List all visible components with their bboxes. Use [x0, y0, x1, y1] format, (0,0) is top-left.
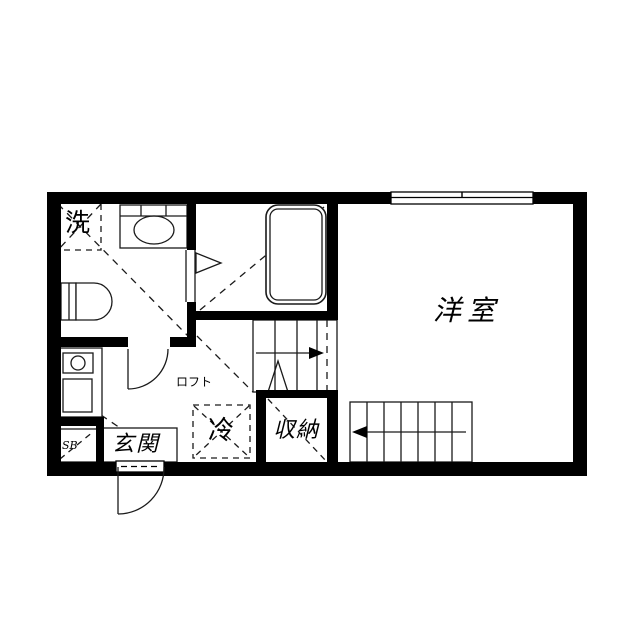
window [391, 192, 533, 204]
bath-folding-door [186, 250, 221, 302]
wash-basin [120, 205, 187, 248]
label-shoe-box: SB [62, 440, 78, 451]
washroom-door-arc [128, 349, 168, 389]
label-loft: ロフト [176, 376, 212, 388]
entrance-threshold [116, 461, 164, 472]
main-stairs-up-arrow-icon [352, 426, 367, 438]
label-entrance: 玄関 [112, 434, 160, 456]
loft-stairs [253, 320, 337, 392]
label-washer-space: 洗 [65, 210, 90, 235]
label-western-room: 洋室 [433, 297, 501, 325]
wall-outer-right [573, 192, 587, 476]
main-stairs [350, 402, 472, 462]
label-storage: 収納 [273, 420, 319, 442]
kitchen-sink-unit [60, 348, 102, 417]
toilet [61, 283, 112, 320]
bathtub [266, 205, 326, 304]
floor-plan-canvas: 洗 洋室 冷 収納 玄関 ロフト SB [0, 0, 640, 640]
floor-plan-drawing [0, 0, 640, 640]
wall-outer-left [47, 192, 61, 476]
label-refrigerator: 冷 [208, 418, 234, 444]
